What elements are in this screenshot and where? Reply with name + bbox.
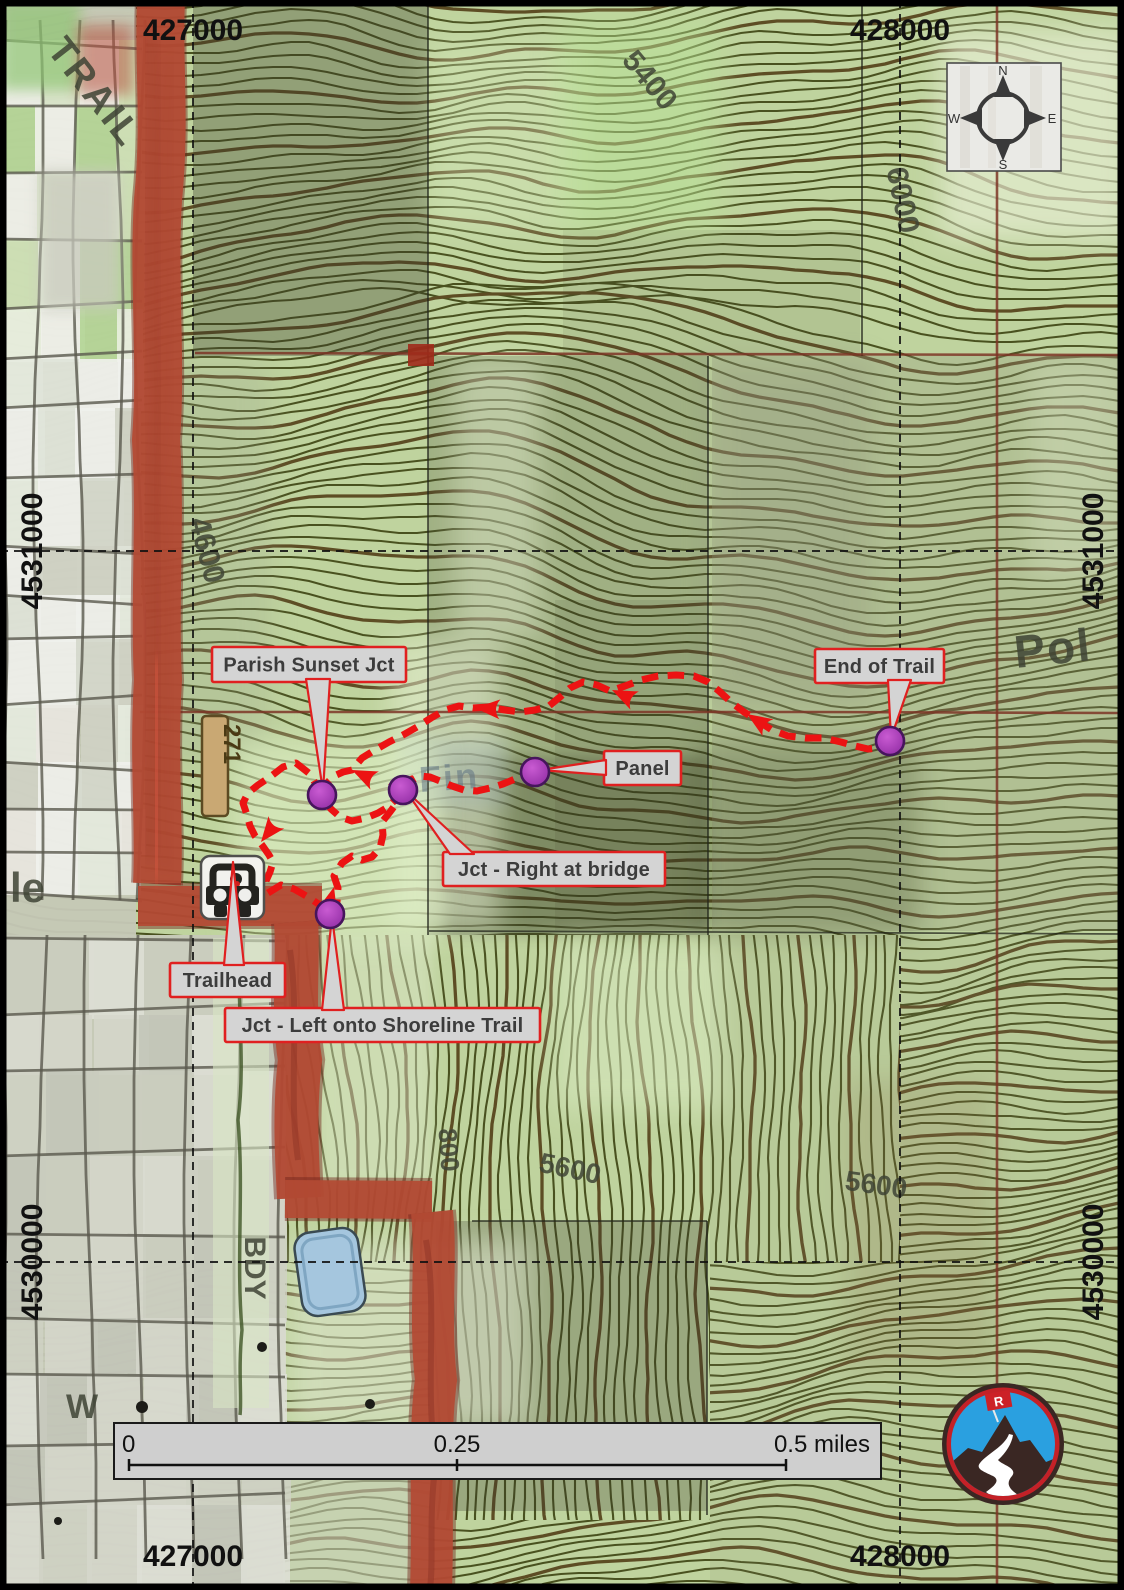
svg-text:le: le — [10, 864, 45, 911]
svg-text:Pol: Pol — [1012, 618, 1095, 678]
svg-text:427000: 427000 — [143, 1540, 243, 1573]
svg-text:0.25: 0.25 — [434, 1431, 481, 1458]
svg-text:W: W — [66, 1388, 99, 1426]
svg-text:E: E — [1048, 111, 1057, 126]
svg-text:End of Trail: End of Trail — [824, 656, 935, 678]
svg-text:S: S — [999, 157, 1008, 172]
svg-text:428000: 428000 — [850, 1540, 950, 1573]
svg-text:W: W — [948, 111, 961, 126]
svg-text:Panel: Panel — [615, 758, 669, 780]
svg-text:Parish Sunset Jct: Parish Sunset Jct — [223, 655, 394, 677]
svg-text:Jct - Right at bridge: Jct - Right at bridge — [458, 859, 650, 881]
svg-text:N: N — [998, 63, 1007, 78]
svg-text:4531000: 4531000 — [1077, 493, 1110, 610]
svg-text:BDY: BDY — [238, 1236, 271, 1299]
svg-text:Trailhead: Trailhead — [183, 970, 273, 992]
svg-text:800: 800 — [433, 1127, 466, 1172]
svg-text:271: 271 — [218, 724, 245, 764]
svg-text:4530000: 4530000 — [16, 1204, 49, 1321]
svg-text:4530000: 4530000 — [1077, 1204, 1110, 1321]
svg-text:428000: 428000 — [850, 14, 950, 47]
svg-text:0.5 miles: 0.5 miles — [774, 1431, 870, 1458]
svg-text:427000: 427000 — [143, 14, 243, 47]
svg-text:4531000: 4531000 — [16, 493, 49, 610]
svg-text:Jct - Left onto Shoreline Trai: Jct - Left onto Shoreline Trail — [242, 1015, 524, 1037]
svg-text:0: 0 — [122, 1431, 135, 1458]
